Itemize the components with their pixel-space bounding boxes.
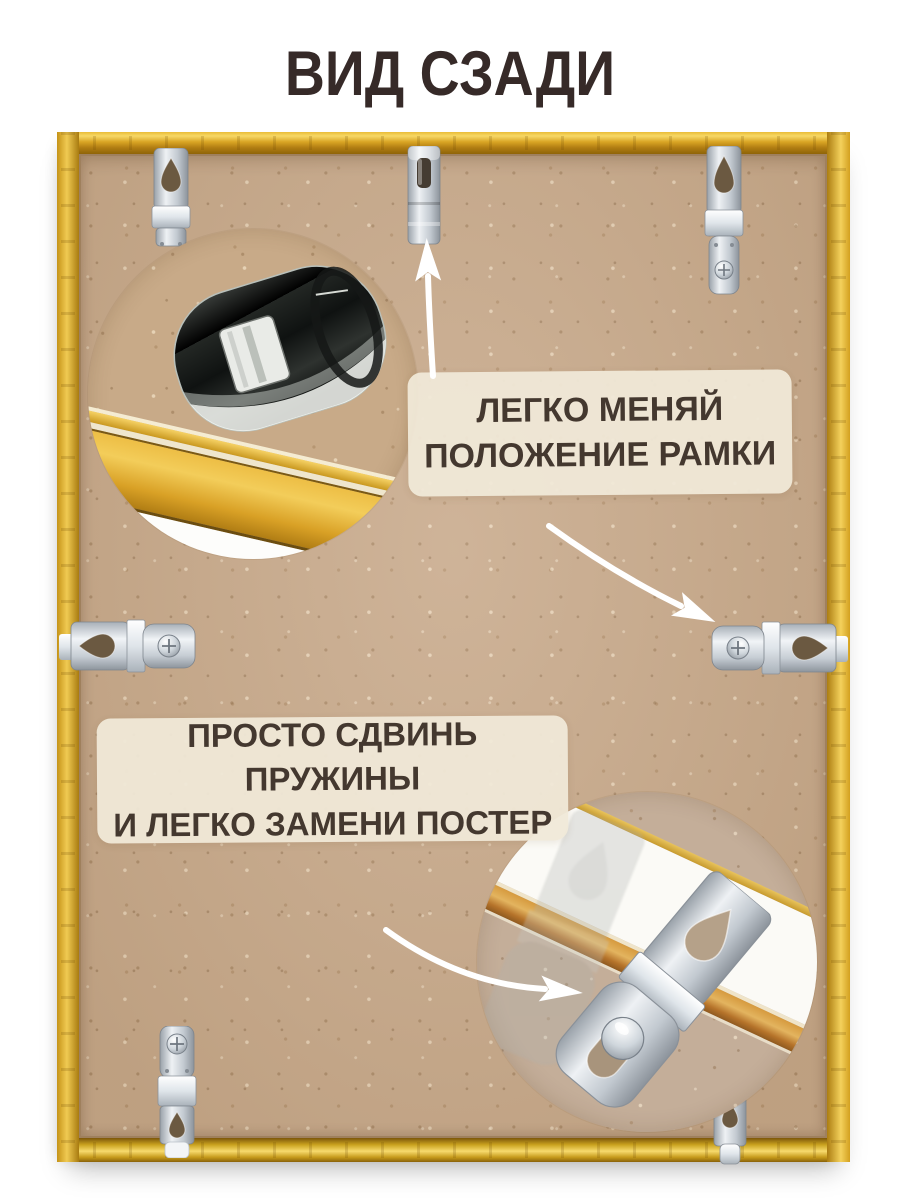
clip-bottom-left <box>152 1026 202 1158</box>
callout-line: И ЛЕГКО ЗАМЕНИ ПОСТЕР <box>113 800 552 848</box>
callout-replace-poster: ПРОСТО СДВИНЬ ПРУЖИНЫ И ЛЕГКО ЗАМЕНИ ПОС… <box>97 715 569 843</box>
callout-line: ПРОСТО СДВИНЬ ПРУЖИНЫ <box>97 711 569 803</box>
clip-middle-right <box>708 620 848 676</box>
spring-clip-closeup <box>166 255 401 455</box>
clip-top-right <box>700 146 748 298</box>
callout-line: ЛЕГКО МЕНЯЙ <box>476 387 723 434</box>
clip-middle-left <box>59 618 199 674</box>
callout-line: ПОЛОЖЕНИЕ РАМКИ <box>424 431 777 479</box>
callout-change-position: ЛЕГКО МЕНЯЙ ПОЛОЖЕНИЕ РАМКИ <box>407 369 792 496</box>
clip-top-middle <box>404 146 444 250</box>
zoom-inset-spring-clip <box>88 229 418 559</box>
clip-top-left <box>148 148 194 254</box>
page-title: ВИД СЗАДИ <box>54 38 846 110</box>
